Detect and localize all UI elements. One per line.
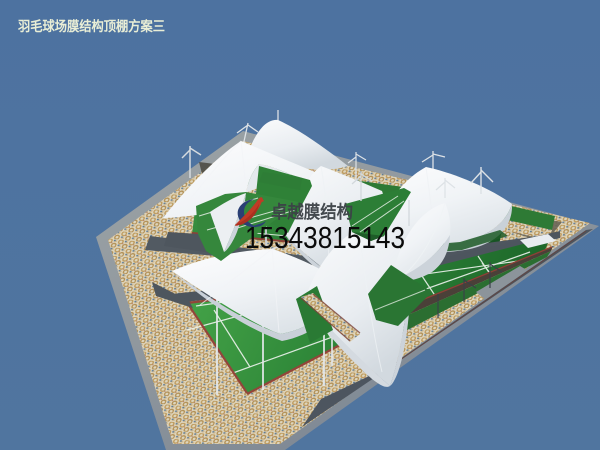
svg-text:羽毛球场膜结构顶棚方案三: 羽毛球场膜结构顶棚方案三	[18, 18, 165, 34]
svg-text:卓越膜结构: 卓越膜结构	[271, 202, 353, 222]
svg-text:15343815143: 15343815143	[245, 220, 405, 255]
